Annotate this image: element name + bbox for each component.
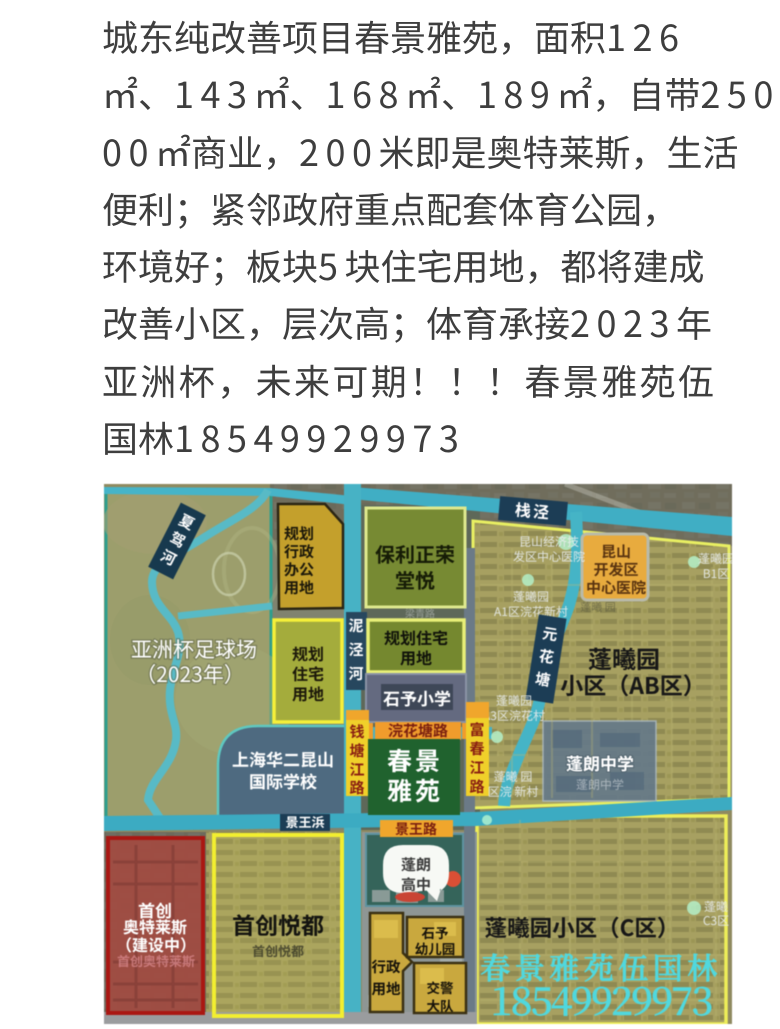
svg-text:保利正荣: 保利正荣 [375, 539, 455, 568]
svg-text:泥: 泥 [348, 615, 363, 636]
svg-text:塘: 塘 [349, 740, 364, 761]
svg-text:C3区: C3区 [703, 912, 729, 929]
svg-text:雅苑: 雅苑 [387, 772, 443, 808]
svg-text:景王浜: 景王浜 [285, 812, 324, 831]
svg-text:首创悦都: 首创悦都 [232, 907, 324, 941]
svg-text:交警: 交警 [427, 977, 454, 997]
svg-text:梁青路: 梁青路 [405, 605, 435, 620]
svg-text:江: 江 [469, 757, 484, 778]
svg-text:B1区: B1区 [703, 565, 730, 582]
svg-text:发区中心医院: 发区中心医院 [513, 548, 585, 565]
svg-text:河: 河 [348, 663, 363, 684]
svg-text:路: 路 [349, 777, 364, 798]
svg-text:大队: 大队 [427, 995, 454, 1015]
svg-text:栈泾: 栈泾 [514, 496, 552, 523]
svg-text:幼儿园: 幼儿园 [415, 938, 456, 958]
svg-text:石予小学: 石予小学 [383, 685, 451, 710]
svg-text:（2023年）: （2023年） [135, 659, 245, 689]
svg-text:区浣 新村: 区浣 新村 [488, 783, 539, 800]
svg-text:富: 富 [469, 719, 484, 740]
svg-text:路: 路 [469, 776, 484, 797]
svg-text:国际学校: 国际学校 [249, 768, 317, 793]
svg-text:春: 春 [469, 738, 484, 759]
svg-text:首创奥特莱斯: 首创奥特莱斯 [117, 951, 195, 970]
svg-text:蓬朗中学: 蓬朗中学 [566, 750, 634, 775]
svg-text:钱: 钱 [349, 721, 364, 742]
svg-text:行政: 行政 [372, 956, 401, 977]
svg-text:蓬曦园小区（C区）: 蓬曦园小区（C区） [485, 911, 680, 943]
svg-text:蓬朗中学: 蓬朗中学 [576, 776, 624, 793]
svg-text:浣花塘路: 浣花塘路 [388, 720, 448, 741]
svg-text:高中: 高中 [401, 874, 431, 895]
svg-text:蓬曦 园: 蓬曦 园 [580, 599, 615, 615]
svg-text:A3区浣花村: A3区浣花村 [483, 707, 545, 724]
svg-text:小区（AB区）: 小区（AB区） [560, 667, 705, 701]
svg-text:泾: 泾 [348, 639, 363, 660]
svg-text:用地: 用地 [292, 681, 324, 705]
svg-text:用地: 用地 [400, 645, 432, 669]
svg-text:中心医院: 中心医院 [586, 577, 646, 598]
svg-text:用地: 用地 [372, 978, 401, 999]
svg-text:用地: 用地 [284, 577, 314, 598]
svg-text:18549929973: 18549929973 [491, 971, 712, 1024]
svg-text:堂悦: 堂悦 [395, 565, 435, 594]
svg-text:景王路: 景王路 [395, 819, 437, 839]
svg-text:首创悦都: 首创悦都 [252, 941, 304, 960]
svg-text:蓬朗: 蓬朗 [401, 854, 431, 875]
